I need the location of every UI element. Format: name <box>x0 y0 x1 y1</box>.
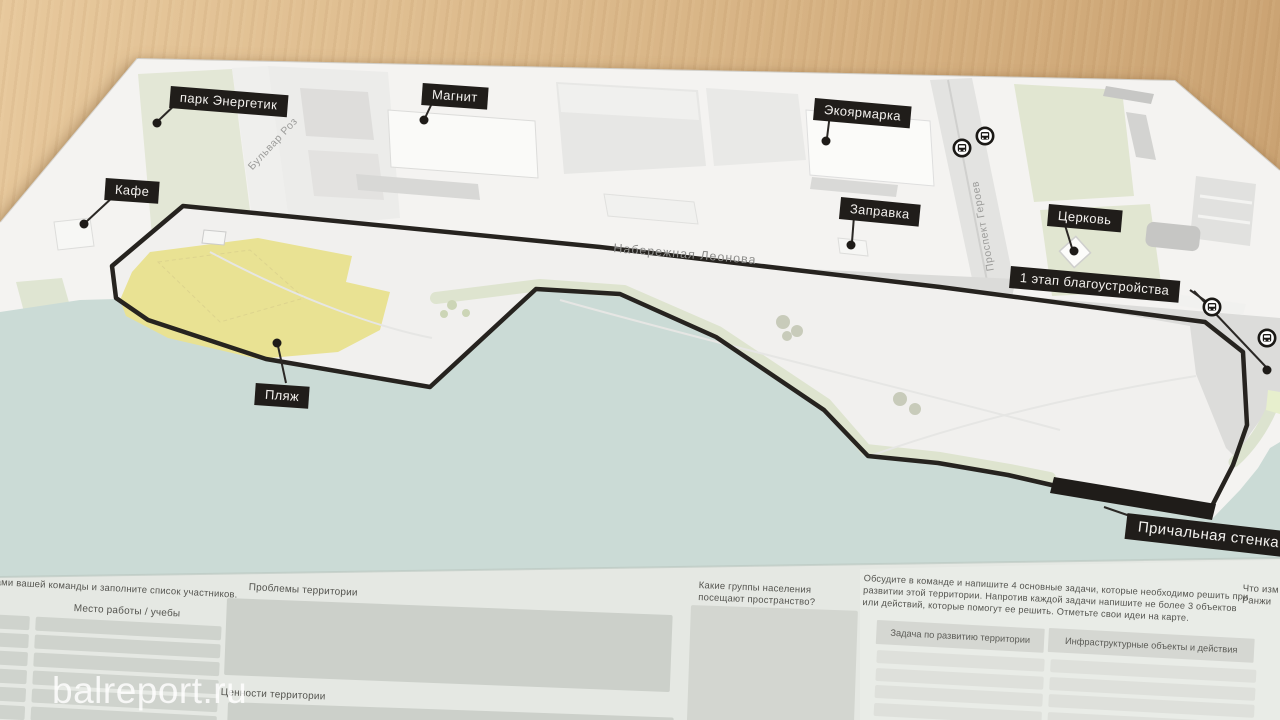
bus-stop-icon <box>954 140 970 156</box>
watermark: balreport.ru <box>52 670 247 712</box>
beach-hut <box>202 230 226 245</box>
building <box>308 150 384 200</box>
bus-stop-icon <box>977 128 993 144</box>
magnit-building <box>388 110 538 178</box>
bus-stop-icon <box>1259 330 1275 346</box>
poster-paper: парк Энергетик Кафе Магнит Экоярмарка За… <box>0 0 1280 720</box>
label-magnit: Магнит <box>421 83 488 110</box>
name-field <box>0 684 26 702</box>
bus-stop-icon <box>1204 299 1220 315</box>
groups-field <box>687 605 858 720</box>
label-cafe: Кафе <box>104 178 160 204</box>
name-field <box>0 702 25 720</box>
name-field <box>0 630 29 648</box>
green-block <box>1014 84 1134 202</box>
label-beach: Пляж <box>254 383 310 409</box>
name-field <box>0 666 27 684</box>
building <box>300 88 374 140</box>
right-edge-cut-text: Что изм Ранжи <box>1242 583 1279 610</box>
poster-paper-wrap: парк Энергетик Кафе Магнит Экоярмарка За… <box>0 0 1280 720</box>
city-block <box>706 88 806 166</box>
photo-of-map-poster: парк Энергетик Кафе Магнит Экоярмарка За… <box>0 0 1280 720</box>
green-patch <box>1266 390 1280 414</box>
name-field <box>0 648 28 666</box>
